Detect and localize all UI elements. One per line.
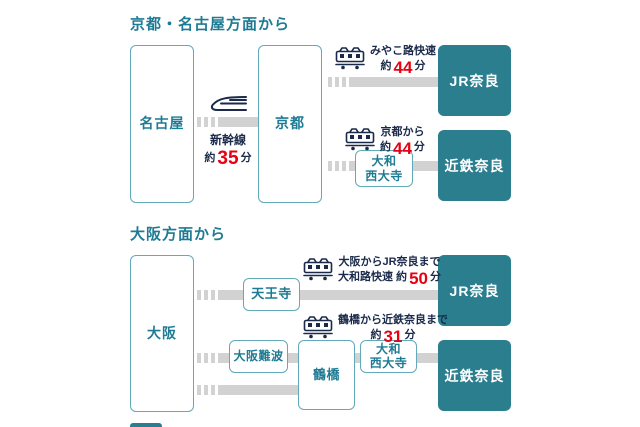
shinkansen-route-label: 新幹線 約 35 分 xyxy=(188,132,268,168)
station-kintetsu-nara-top: 近鉄奈良 xyxy=(438,130,511,201)
track-dash xyxy=(335,77,339,87)
station-osaka-namba-label: 大阪難波 xyxy=(233,349,283,364)
shinkansen-time: 約 35 分 xyxy=(204,149,251,168)
time-approx: 約 xyxy=(380,141,391,155)
track-dash xyxy=(211,290,215,300)
time-unit: 分 xyxy=(414,60,425,74)
time-approx: 約 xyxy=(371,329,382,343)
train-icon xyxy=(303,256,333,286)
cutoff-teal-box xyxy=(130,423,162,427)
time-minutes: 31 xyxy=(384,328,403,345)
route-label-miyakoji: みやこ路快速 約 44 分 xyxy=(335,45,436,76)
track-dash xyxy=(335,161,339,171)
route-line-name: 鶴橋から近鉄奈良まで xyxy=(338,314,448,328)
track-dash xyxy=(211,385,215,395)
route-line-name: みやこ路快速 xyxy=(370,45,436,59)
route-label-tsuruhashi-kintetsu: 鶴橋から近鉄奈良まで 約 31 分 xyxy=(303,314,448,345)
route-line2-prefix: 大和路快速 約 xyxy=(338,271,407,285)
route-line-name: 大阪からJR奈良まで xyxy=(338,256,440,270)
track-dash xyxy=(197,353,201,363)
track-dash xyxy=(204,117,208,127)
route-time: 約 44 分 xyxy=(381,59,426,76)
route-time: 大和路快速 約 50 分 xyxy=(338,270,441,287)
time-unit: 分 xyxy=(430,271,441,285)
station-tennoji: 天王寺 xyxy=(243,278,300,311)
track-dash xyxy=(197,117,201,127)
station-jr-nara-label: JR奈良 xyxy=(450,71,500,91)
track-dash xyxy=(197,290,201,300)
station-kintetsu-nara-bottom: 近鉄奈良 xyxy=(438,340,511,411)
section1-title: 京都・名古屋方面から xyxy=(130,13,290,34)
time-approx: 約 xyxy=(381,60,392,74)
track-dash xyxy=(204,353,208,363)
train-icon xyxy=(345,126,375,156)
route-line-name: 京都から xyxy=(380,126,424,140)
station-nagoya-label: 名古屋 xyxy=(140,115,185,133)
station-kyoto-label: 京都 xyxy=(275,115,305,133)
time-minutes: 44 xyxy=(393,140,412,157)
station-tennoji-label: 天王寺 xyxy=(251,286,292,302)
route-text-yamatoji: 大阪からJR奈良まで 大和路快速 約 50 分 xyxy=(338,256,441,287)
station-kintetsu-nara-label: 近鉄奈良 xyxy=(445,156,505,176)
route-text-tsuruhashi-kintetsu: 鶴橋から近鉄奈良まで 約 31 分 xyxy=(338,314,448,345)
station-jr-nara-top: JR奈良 xyxy=(438,45,511,116)
station-name-line2: 西大寺 xyxy=(370,356,408,370)
track-dash xyxy=(204,385,208,395)
route-time: 約 44 分 xyxy=(380,140,425,157)
station-tsuruhashi: 鶴橋 xyxy=(298,340,355,410)
time-minutes: 50 xyxy=(409,270,428,287)
track-dash xyxy=(328,77,332,87)
station-yamato-saidaiji-label: 大和 西大寺 xyxy=(365,154,403,184)
track-dash xyxy=(211,117,215,127)
track-bar xyxy=(218,117,258,127)
train-icon xyxy=(303,314,333,344)
time-unit: 分 xyxy=(414,141,425,155)
shinkansen-icon xyxy=(208,93,248,115)
section2-title: 大阪方面から xyxy=(130,223,226,244)
time-minutes: 44 xyxy=(394,59,413,76)
track-jr-osaka-nara xyxy=(197,290,438,300)
time-unit: 分 xyxy=(404,329,415,343)
track-dash xyxy=(342,161,346,171)
station-kintetsu-nara-label: 近鉄奈良 xyxy=(445,366,505,386)
route-text-kyoto-kintetsu: 京都から 約 44 分 xyxy=(380,126,425,157)
station-jr-nara-bottom: JR奈良 xyxy=(438,255,511,326)
station-osaka: 大阪 xyxy=(130,255,194,412)
station-osaka-namba: 大阪難波 xyxy=(229,340,288,373)
track-shinkansen xyxy=(197,117,258,127)
transit-access-diagram: 京都・名古屋方面から 名古屋 京都 新幹線 約 35 分 xyxy=(0,0,640,427)
station-tsuruhashi-label: 鶴橋 xyxy=(313,367,340,383)
station-kyoto: 京都 xyxy=(258,45,322,203)
shinkansen-line-name: 新幹線 xyxy=(210,132,246,149)
train-icon xyxy=(335,45,365,75)
station-nagoya: 名古屋 xyxy=(130,45,194,203)
route-label-yamatoji: 大阪からJR奈良まで 大和路快速 約 50 分 xyxy=(303,256,441,287)
time-unit: 分 xyxy=(241,151,252,166)
track-jr-kyoto-nara xyxy=(328,77,438,87)
route-text-miyakoji: みやこ路快速 約 44 分 xyxy=(370,45,436,76)
station-name-line2: 西大寺 xyxy=(365,169,403,183)
track-dash xyxy=(211,353,215,363)
route-label-kyoto-kintetsu: 京都から 約 44 分 xyxy=(345,126,425,157)
station-jr-nara-label: JR奈良 xyxy=(450,281,500,301)
track-dash xyxy=(342,77,346,87)
track-dash xyxy=(197,385,201,395)
route-time: 約 31 分 xyxy=(371,328,416,345)
time-minutes: 35 xyxy=(217,149,238,168)
track-dash xyxy=(328,161,332,171)
station-osaka-label: 大阪 xyxy=(147,325,177,343)
station-yamato-saidaiji-label: 大和 西大寺 xyxy=(370,343,408,371)
time-approx: 約 xyxy=(204,151,215,166)
track-bar xyxy=(349,77,438,87)
track-dash xyxy=(204,290,208,300)
